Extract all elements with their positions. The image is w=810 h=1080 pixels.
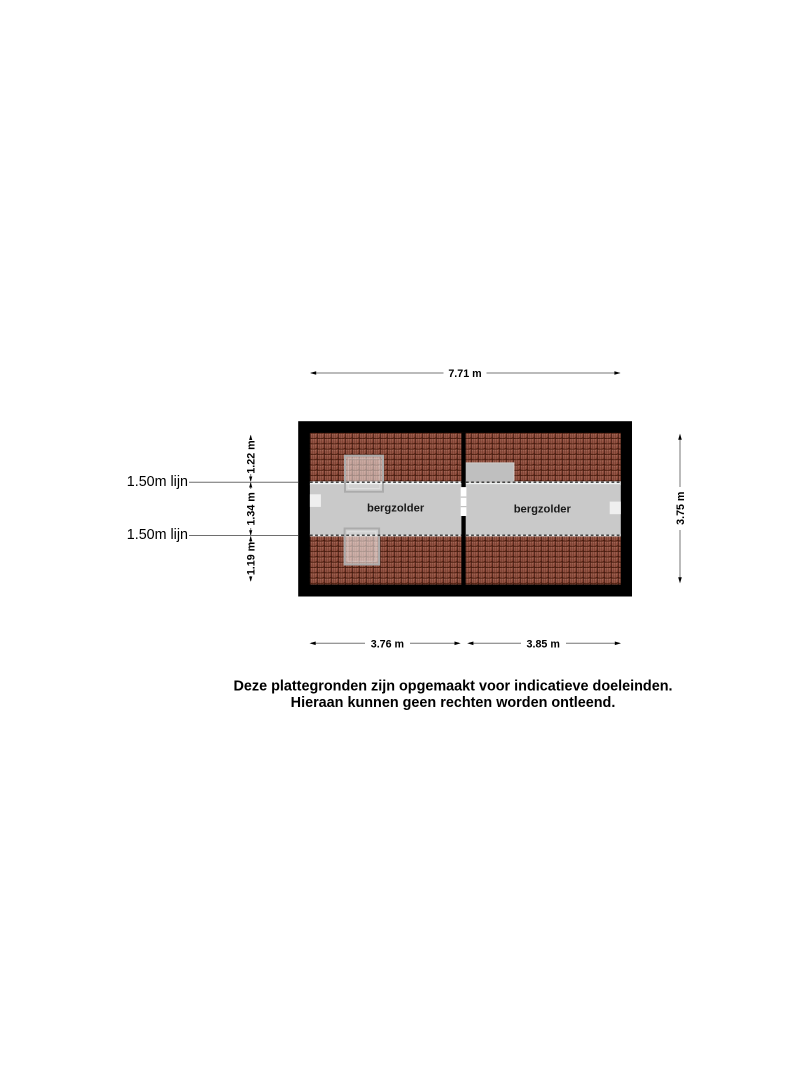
svg-text:bergzolder: bergzolder <box>367 502 425 514</box>
svg-text:Deze plattegronden zijn opgema: Deze plattegronden zijn opgemaakt voor i… <box>234 679 673 695</box>
svg-text:1.50m lijn: 1.50m lijn <box>127 474 188 490</box>
svg-text:1.34 m: 1.34 m <box>246 492 258 525</box>
svg-text:1.50m lijn: 1.50m lijn <box>127 527 188 543</box>
svg-text:1.19 m: 1.19 m <box>246 542 258 575</box>
svg-text:3.76 m: 3.76 m <box>371 638 404 650</box>
svg-text:3.75 m: 3.75 m <box>675 492 687 525</box>
svg-text:7.71 m: 7.71 m <box>448 368 481 380</box>
svg-text:3.85 m: 3.85 m <box>527 638 560 650</box>
svg-text:1.22 m: 1.22 m <box>246 440 258 473</box>
svg-text:bergzolder: bergzolder <box>514 504 572 516</box>
svg-text:Hieraan kunnen geen rechten wo: Hieraan kunnen geen rechten worden ontle… <box>291 695 616 711</box>
